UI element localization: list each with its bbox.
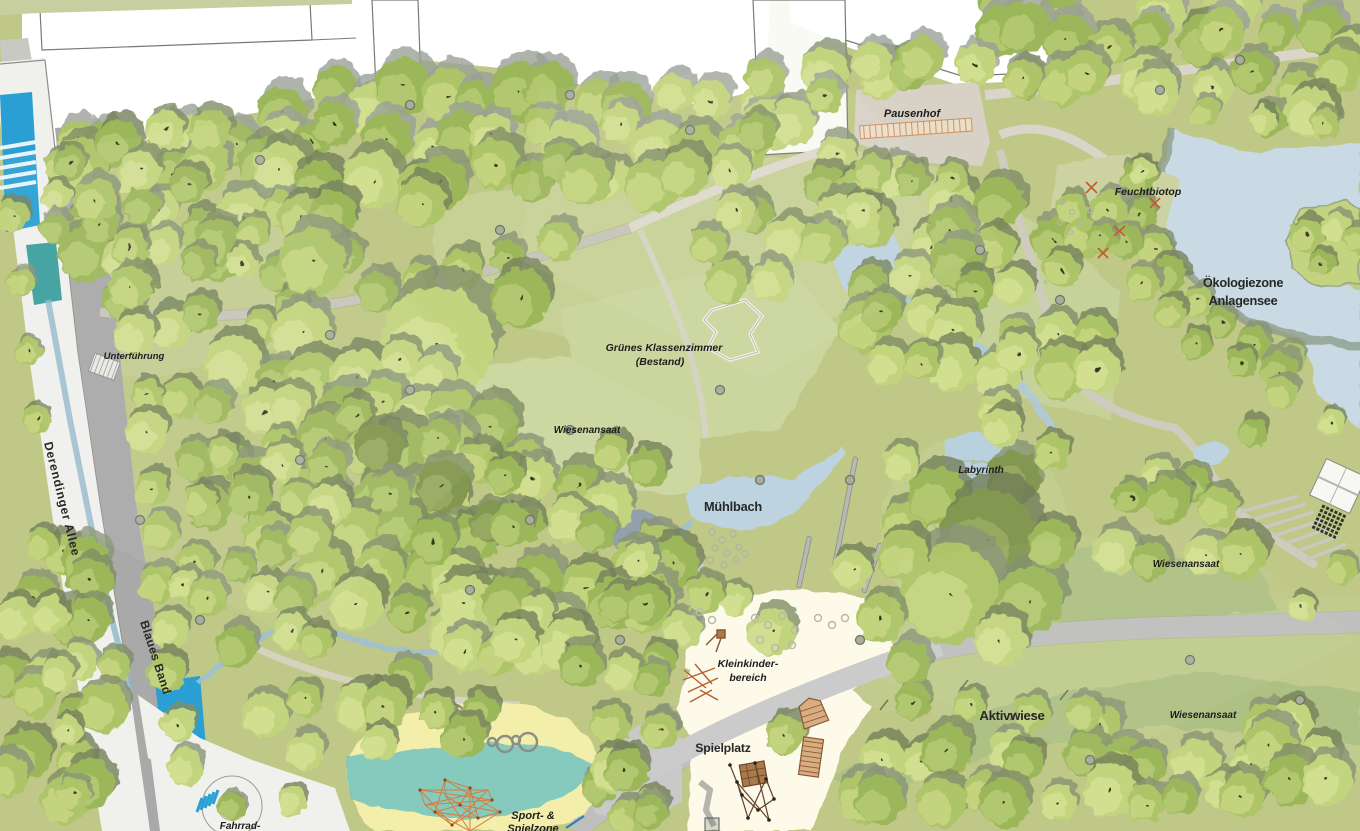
svg-text:Kleinkinder-: Kleinkinder- (718, 658, 779, 670)
svg-text:Grünes Klassenzimmer: Grünes Klassenzimmer (606, 342, 724, 354)
svg-text:Spielplatz: Spielplatz (695, 741, 750, 755)
svg-text:(Bestand): (Bestand) (636, 356, 685, 368)
svg-text:bereich: bereich (729, 672, 766, 684)
svg-text:Spielzone: Spielzone (507, 823, 558, 831)
svg-text:Sport- &: Sport- & (511, 810, 554, 822)
svg-text:Labyrinth: Labyrinth (958, 465, 1004, 476)
svg-text:Mühlbach: Mühlbach (704, 499, 762, 514)
svg-text:Wiesenansaat: Wiesenansaat (1170, 710, 1237, 721)
svg-text:Ökologiezone: Ökologiezone (1203, 275, 1283, 290)
svg-text:Pausenhof: Pausenhof (884, 108, 942, 120)
svg-text:Aktivwiese: Aktivwiese (979, 708, 1044, 723)
svg-text:Wiesenansaat: Wiesenansaat (554, 425, 621, 436)
svg-text:Feuchtbiotop: Feuchtbiotop (1115, 186, 1182, 198)
svg-text:Anlagensee: Anlagensee (1209, 293, 1278, 308)
svg-text:Fahrrad-: Fahrrad- (220, 821, 261, 831)
svg-text:Unterführung: Unterführung (104, 351, 165, 362)
svg-text:Wiesenansaat: Wiesenansaat (1153, 559, 1220, 570)
